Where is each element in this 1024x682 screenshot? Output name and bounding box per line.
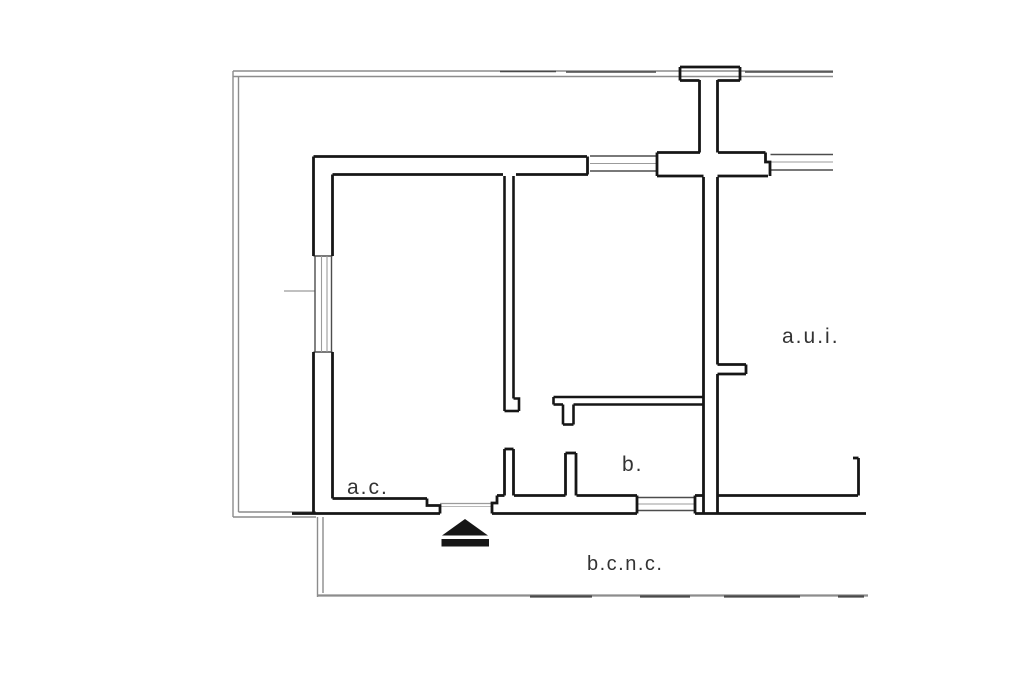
outer-boundary-lines (233, 71, 833, 517)
interior-walls (505, 176, 704, 425)
label-room-b: b. (622, 454, 644, 475)
floor-plan-drawing (0, 0, 1024, 682)
floor-plan-page: a.c. b. a.u.i. b.c.n.c. (0, 0, 1024, 682)
label-common-area-bcnc: b.c.n.c. (587, 554, 663, 574)
label-unit-aui: a.u.i. (782, 326, 840, 347)
label-unit-ac: a.c. (347, 477, 389, 498)
exterior-walls (292, 157, 866, 514)
pillar-walls (657, 67, 770, 176)
entrance-arrow-icon (442, 519, 490, 547)
window-lines (314, 155, 834, 511)
